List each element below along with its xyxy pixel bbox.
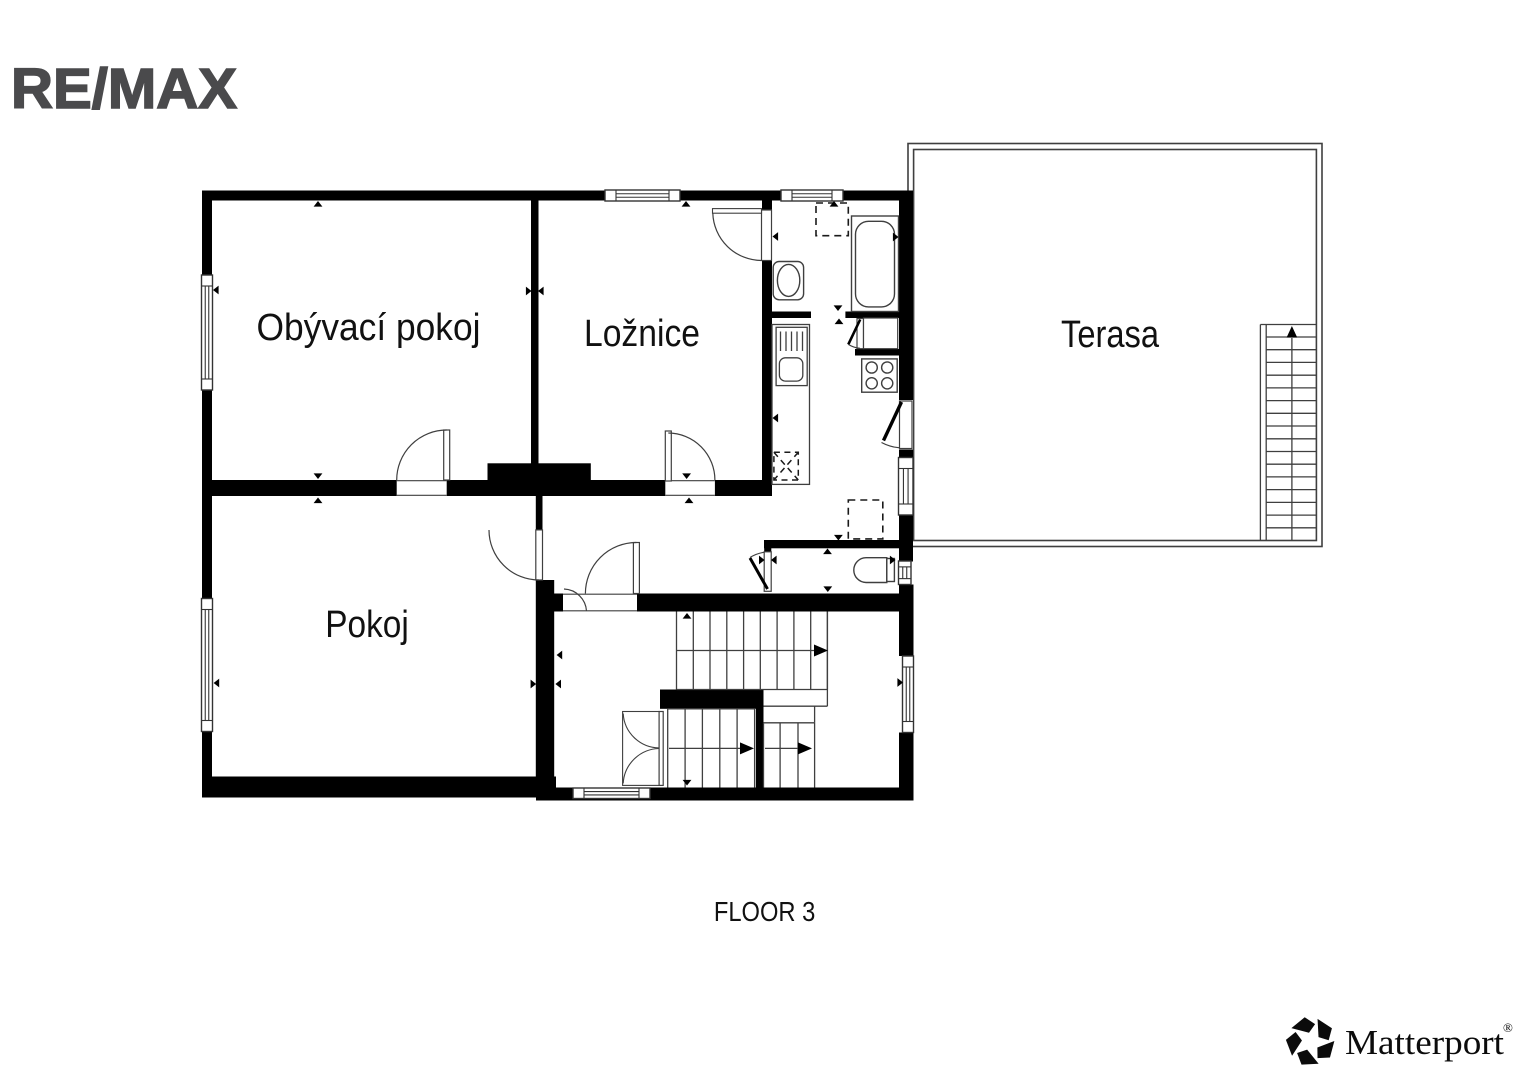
svg-text:RE/MAX: RE/MAX: [11, 57, 237, 121]
svg-text:Terasa: Terasa: [1061, 314, 1160, 356]
svg-text:Matterport: Matterport: [1345, 1024, 1504, 1062]
svg-text:FLOOR 3: FLOOR 3: [714, 896, 816, 927]
svg-text:Obývací pokoj: Obývací pokoj: [257, 307, 481, 349]
svg-text:Ložnice: Ložnice: [584, 313, 700, 355]
svg-text:Pokoj: Pokoj: [325, 604, 409, 646]
svg-text:®: ®: [1503, 1020, 1513, 1035]
